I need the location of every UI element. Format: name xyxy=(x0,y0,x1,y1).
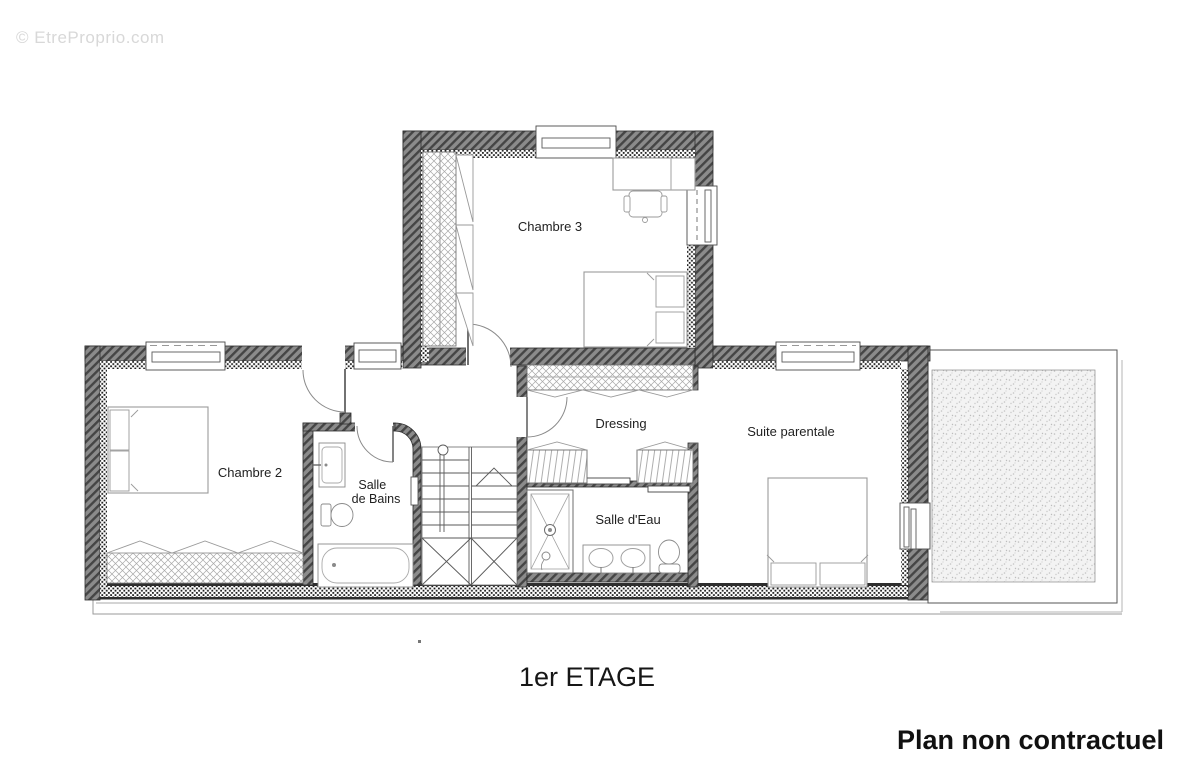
wall-main-west xyxy=(85,346,100,600)
door-salle-de-bains xyxy=(355,421,393,462)
furniture-chambre3 xyxy=(584,158,695,347)
label-suite-parentale: Suite parentale xyxy=(747,424,834,439)
bathtub xyxy=(318,544,413,587)
fixtures-salle-deau xyxy=(527,490,680,573)
door-chambre2 xyxy=(302,344,345,413)
wall-sde-south-kneewall xyxy=(527,573,688,582)
wall-chambre3-west xyxy=(403,131,421,368)
fixtures-salle-de-bains xyxy=(313,443,418,587)
wall-chambre3-south-right xyxy=(508,348,695,365)
furniture-suite xyxy=(767,478,868,587)
toilet-sdb xyxy=(321,504,353,527)
label-dressing: Dressing xyxy=(595,416,646,431)
furniture-chambre2 xyxy=(108,407,208,493)
terrace xyxy=(928,350,1117,603)
wardrobe-chambre3 xyxy=(423,152,473,346)
washbasin xyxy=(313,443,345,487)
wall-main-south-edge2 xyxy=(100,597,908,600)
label-chambre3: Chambre 3 xyxy=(518,219,582,234)
window-chambre2 xyxy=(146,342,225,370)
label-chambre2: Chambre 2 xyxy=(218,465,282,480)
label-salle-deau: Salle d'Eau xyxy=(595,512,660,527)
wardrobe-dressing-north xyxy=(527,365,693,397)
shower xyxy=(527,490,573,573)
window-suite xyxy=(776,342,860,370)
toilet-sde xyxy=(659,540,681,573)
staircase xyxy=(422,445,517,585)
wardrobe-dressing-left xyxy=(527,442,587,483)
passage-dressing-suite xyxy=(690,390,698,443)
floor-plan-page: Chambre 3 Chambre 2 Salle de Bains Dress… xyxy=(0,0,1200,783)
terrace-gravel-texture xyxy=(932,370,1095,582)
window-chambre3-north xyxy=(536,126,616,158)
floor-title: 1er ETAGE xyxy=(519,662,655,692)
double-washbasin xyxy=(583,545,650,573)
kneewall-storage-chambre2 xyxy=(107,541,303,583)
bed-double-suite xyxy=(767,478,868,587)
window-landing xyxy=(354,343,401,369)
radiator xyxy=(411,477,418,505)
bed-double-chambre3 xyxy=(584,272,687,347)
desk xyxy=(613,158,695,190)
watermark-text: © EtreProprio.com xyxy=(16,28,165,47)
wall-sdb-west xyxy=(303,423,313,585)
disclaimer-text: Plan non contractuel xyxy=(897,725,1164,755)
wall-main-east xyxy=(908,346,928,600)
wall-landing-stub xyxy=(340,413,351,424)
bed-double-chambre2 xyxy=(108,407,208,493)
door-terrace-sliding xyxy=(900,503,930,549)
door-dressing xyxy=(515,397,567,437)
floor-plan-drawing: Chambre 3 Chambre 2 Salle de Bains Dress… xyxy=(0,0,1200,783)
stair-newel-post xyxy=(438,445,448,455)
wall-chambre3-east xyxy=(695,131,713,368)
label-salle-de-bains: Salle de Bains xyxy=(352,478,401,506)
wardrobe-dressing-right xyxy=(637,442,693,483)
window-chambre3-east xyxy=(687,186,717,245)
desk-chair xyxy=(624,191,667,223)
stray-dot xyxy=(418,640,421,643)
